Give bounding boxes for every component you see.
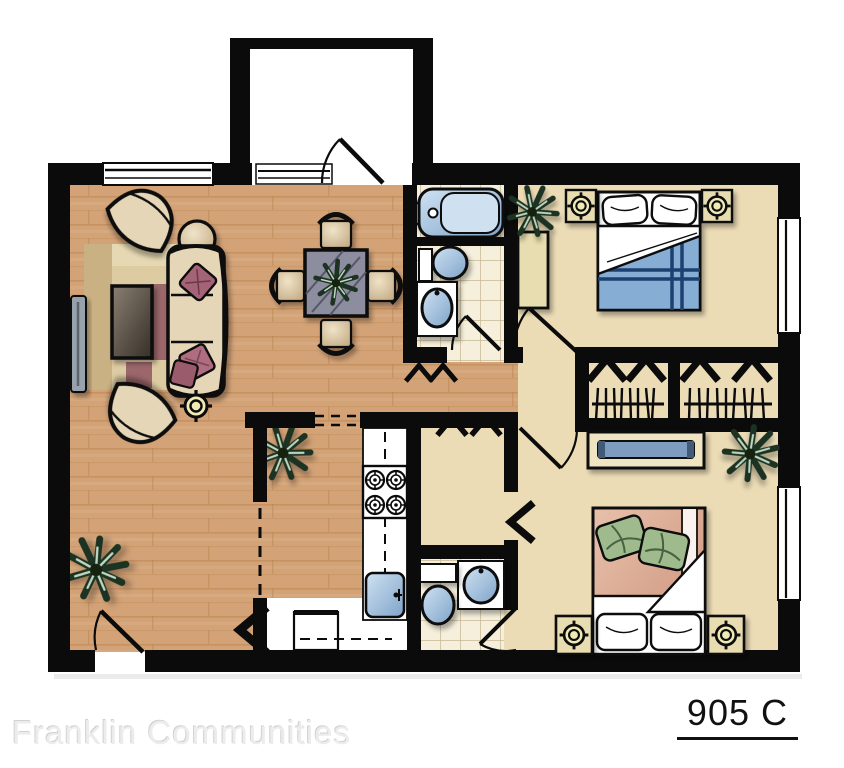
kitchen-sink-icon [366, 573, 404, 617]
bed-icon [593, 508, 705, 654]
sink-icon [417, 282, 457, 336]
bedroom-1 [501, 179, 732, 310]
dining-chair [321, 221, 351, 248]
sofa [168, 246, 226, 396]
pillow-icon [651, 195, 696, 225]
entry-sidelight-icon [256, 164, 332, 184]
nightstand [708, 616, 744, 654]
brand-watermark: Franklin Communities [12, 714, 351, 752]
dresser [588, 432, 704, 468]
toilet-icon [420, 564, 456, 624]
refrigerator-icon [294, 610, 338, 650]
sink-icon [458, 561, 504, 609]
unit-number: 905 C [677, 692, 798, 740]
throw-pillow [169, 359, 198, 388]
window-icon [103, 163, 213, 185]
pillow-icon [651, 614, 701, 650]
nightstand [702, 190, 732, 222]
dresser [518, 232, 548, 308]
plan-shadow [54, 674, 802, 679]
window-icon [778, 218, 800, 333]
toilet-icon [419, 247, 467, 281]
dining-chair [277, 271, 304, 301]
dining-chair [368, 271, 395, 301]
nightstand [566, 190, 596, 222]
nightstand [556, 616, 592, 654]
tv [71, 296, 86, 392]
coffee-table [112, 286, 152, 358]
dining-chair [321, 320, 351, 347]
floorplan-drawing [0, 0, 844, 768]
pillow-icon [597, 614, 647, 650]
walkin-closet-floor [421, 428, 504, 545]
floorplan-page: Franklin Communities 905 C [0, 0, 844, 768]
window-icon [778, 487, 800, 600]
pillow-icon [638, 527, 690, 572]
bathtub-icon [414, 189, 503, 237]
pillow-icon [602, 194, 648, 225]
kitchen-range-icon [363, 466, 407, 518]
bed-icon [598, 192, 700, 310]
